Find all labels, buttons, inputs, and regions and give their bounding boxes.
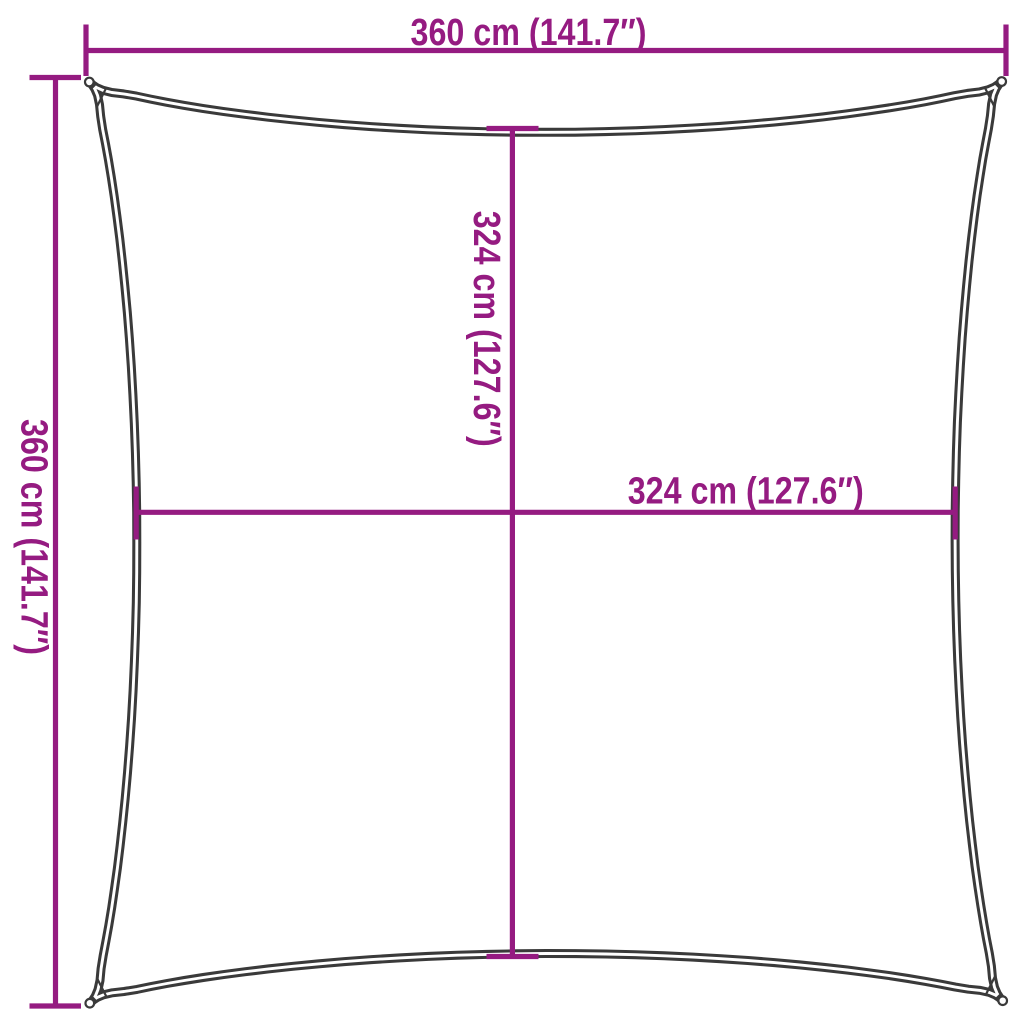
svg-text:360 cm (141.7″): 360 cm (141.7″)	[411, 12, 647, 54]
svg-text:324 cm (127.6″): 324 cm (127.6″)	[465, 211, 507, 447]
svg-text:324 cm (127.6″): 324 cm (127.6″)	[628, 470, 864, 512]
svg-text:360 cm (141.7″): 360 cm (141.7″)	[12, 419, 54, 655]
